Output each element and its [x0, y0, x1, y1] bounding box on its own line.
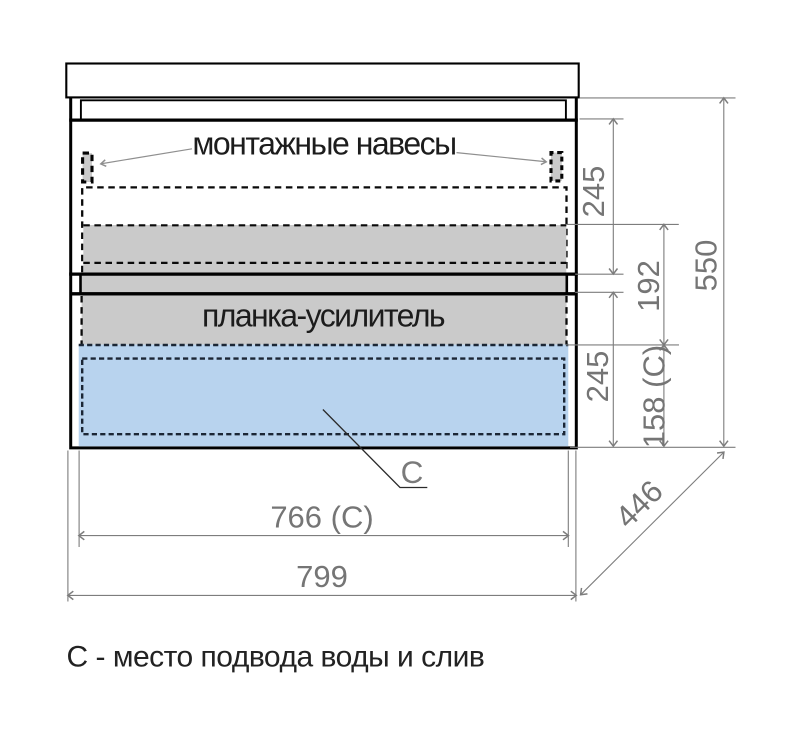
svg-text:245: 245 — [576, 166, 611, 218]
svg-text:766 (C): 766 (C) — [270, 500, 373, 535]
svg-text:158 (C): 158 (C) — [637, 345, 672, 448]
svg-text:C: C — [401, 454, 424, 490]
svg-text:245: 245 — [580, 351, 615, 403]
svg-text:192: 192 — [631, 260, 666, 312]
svg-text:С - место подвода воды и слив: С - место подвода воды и слив — [67, 641, 485, 674]
svg-text:550: 550 — [689, 240, 724, 292]
svg-text:799: 799 — [296, 559, 348, 594]
svg-text:монтажные навесы: монтажные навесы — [192, 126, 455, 162]
svg-text:планка-усилитель: планка-усилитель — [202, 298, 445, 334]
